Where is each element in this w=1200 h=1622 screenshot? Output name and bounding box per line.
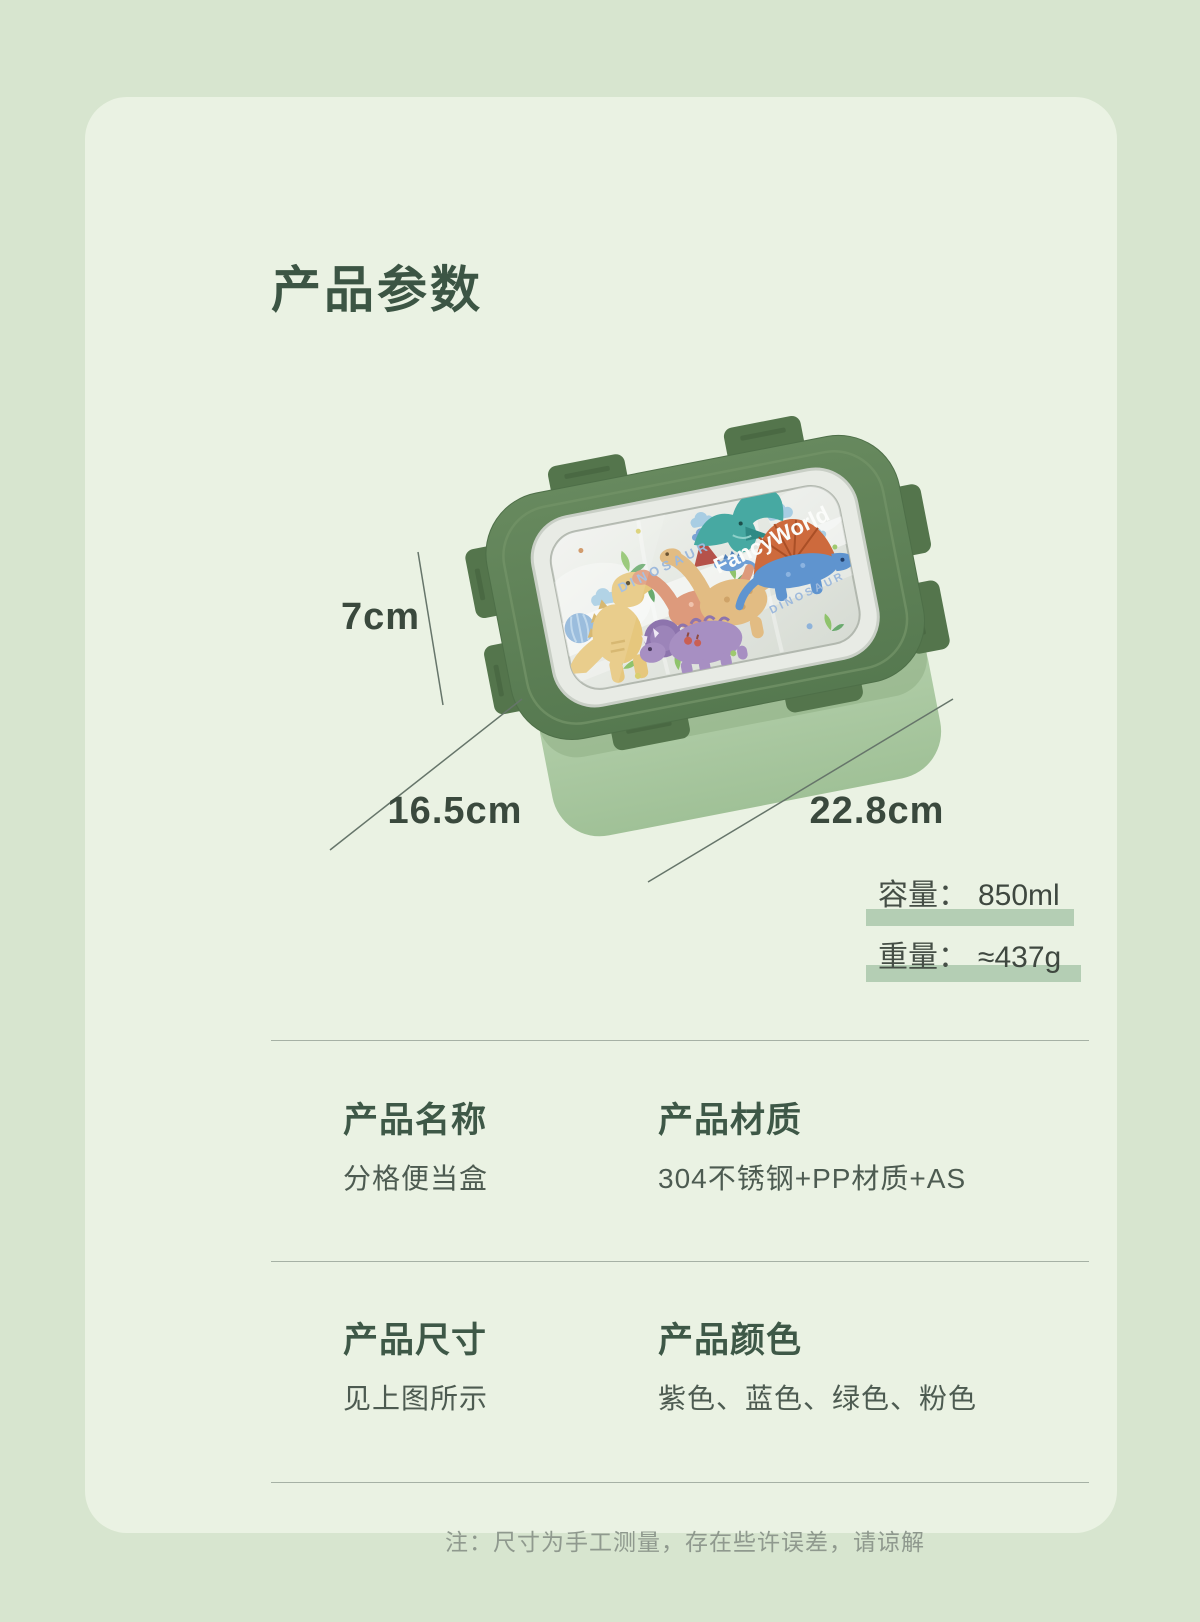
divider	[271, 1482, 1089, 1483]
capacity-row: 容量：850ml	[866, 878, 1074, 918]
spec-heading: 产品颜色	[658, 1319, 1088, 1363]
capacity-label: 容量：	[878, 879, 968, 912]
divider	[271, 1040, 1089, 1041]
parameters-card: 产品参数	[85, 97, 1117, 1533]
bento-box: DINOSAUR FancyWorld DINOSAUR	[450, 394, 973, 852]
spec-heading: 产品材质	[658, 1099, 1088, 1143]
dimension-depth-label: 16.5cm	[388, 790, 523, 832]
spec-value: 紫色、蓝色、绿色、粉色	[658, 1381, 1088, 1417]
measurement-note: 注：尺寸为手工测量，存在些许误差，请谅解	[85, 1525, 1200, 1559]
page-title: 产品参数	[271, 257, 483, 323]
product-detail-page: 产品参数	[0, 0, 1200, 1622]
weight-label: 重量：	[878, 941, 968, 974]
capacity-value: 850ml	[978, 879, 1060, 912]
spec-value: 304不锈钢+PP材质+AS	[658, 1161, 1088, 1197]
dimension-width-label: 22.8cm	[810, 790, 945, 832]
divider	[271, 1261, 1089, 1262]
spec-product-color: 产品颜色 紫色、蓝色、绿色、粉色	[658, 1319, 1088, 1417]
dimension-height-label: 7cm	[341, 596, 420, 638]
spec-product-material: 产品材质 304不锈钢+PP材质+AS	[658, 1099, 1088, 1197]
weight-row: 重量：≈437g	[866, 940, 1081, 980]
product-illustration: DINOSAUR FancyWorld DINOSAUR 7cm 16.	[305, 357, 1085, 907]
weight-value: ≈437g	[978, 941, 1061, 974]
